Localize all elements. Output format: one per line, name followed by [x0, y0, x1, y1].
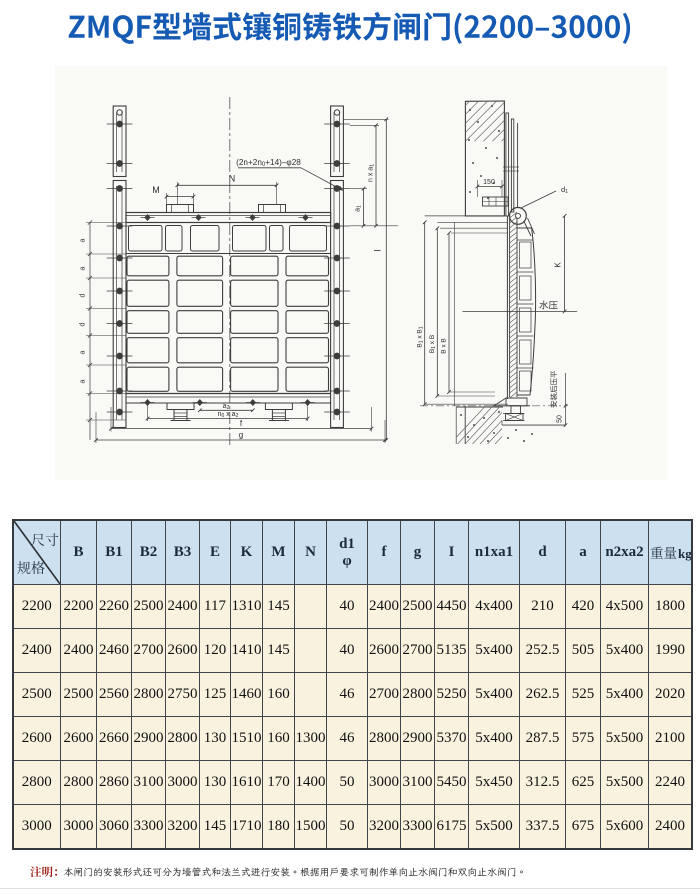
svg-text:N: N [229, 174, 236, 184]
svg-text:g: g [239, 431, 243, 440]
svg-text:d: d [80, 322, 87, 326]
svg-text:B x B: B x B [441, 338, 448, 354]
svg-text:n0 x a2: n0 x a2 [218, 411, 239, 419]
svg-text:d: d [80, 293, 87, 297]
svg-text:50: 50 [557, 415, 564, 423]
svg-text:l: l [373, 250, 383, 252]
svg-text:a: a [80, 266, 87, 270]
svg-text:K: K [554, 262, 563, 268]
svg-text:150: 150 [483, 179, 495, 186]
svg-text:B1 x B1: B1 x B1 [417, 326, 425, 347]
svg-text:a: a [80, 379, 87, 383]
svg-text:a1: a1 [355, 205, 363, 212]
svg-text:kg: kg [678, 546, 691, 561]
svg-text:n x a1: n x a1 [368, 164, 376, 182]
svg-text:a: a [80, 350, 87, 354]
svg-text:B1 x B: B1 x B [429, 335, 437, 353]
svg-text:a2: a2 [223, 403, 230, 411]
svg-text:M: M [152, 185, 160, 195]
svg-text:a: a [80, 238, 87, 242]
svg-text:(2n+2n0+14)–φ28: (2n+2n0+14)–φ28 [236, 158, 301, 168]
